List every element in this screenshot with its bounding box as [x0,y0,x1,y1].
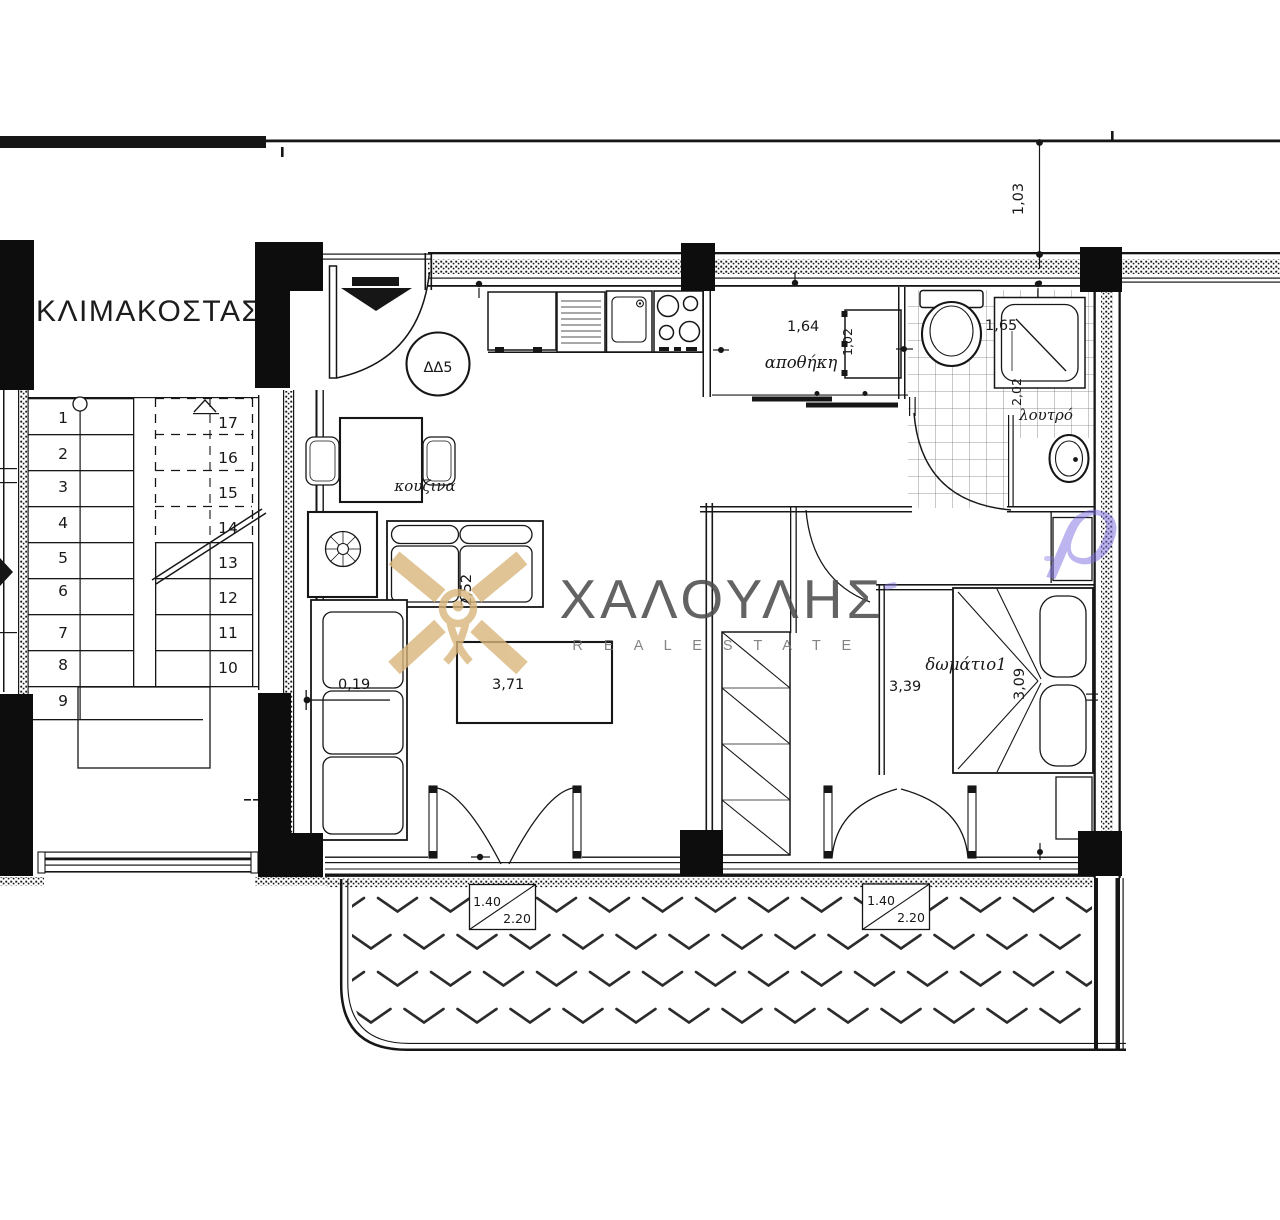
stair-number: 14 [218,519,238,537]
stair-break-line [152,509,262,580]
stair-number: 11 [218,624,238,642]
cooktop-icon [654,291,703,352]
bedroom-depth-dim: 3,09 [1012,668,1028,700]
stair-number: 6 [58,582,68,600]
column [1078,831,1122,876]
column [681,243,715,291]
dining-set: κουζινα [306,418,456,502]
sofa-offset-dim: 0,19 [338,677,370,693]
entrance-arrow-icon [341,288,412,311]
floor-plan-svg: 1 2 3 4 5 6 7 8 9 17 16 15 14 13 12 11 1… [0,0,1280,1220]
staircase: 1 2 3 4 5 6 7 8 9 17 16 15 14 13 12 11 1… [28,295,266,768]
entrance-arrow-bar [352,277,399,286]
kitchen-label: κουζινα [393,477,455,495]
stair-number: 7 [58,624,68,642]
window-dimension-box-living: 1.40 2.20 [470,885,536,930]
stair-walkline-start [73,397,87,411]
stair-number: 1 [58,409,68,427]
brand-name: ΧΑΛΟΥΛΗΣ [559,568,884,630]
storage-door-dim: 1,02 [840,328,855,356]
bathroom-label: λουτρό [1018,406,1073,424]
stair-number: 17 [218,414,238,432]
entrance-door-leaf [330,266,337,378]
dishwasher-icon [557,292,605,352]
column [255,242,323,388]
stray-watermark-letter: ρ [1045,463,1130,593]
toilet-icon [920,291,983,367]
balcony-paving [352,883,1092,1041]
column [0,240,34,390]
living-width-dim: 3,71 [492,677,524,693]
storage-width-dim: 1,64 [787,319,819,335]
balcony-door-living [429,786,581,864]
entrance-door-swing [337,272,430,378]
stair-number: 12 [218,589,238,607]
bedroom-label: δωμάτιο1 [925,655,1006,674]
stair-landing [78,687,210,768]
floor-plan: 1 2 3 4 5 6 7 8 9 17 16 15 14 13 12 11 1… [0,0,1280,1220]
insulation-hatch-top [428,259,1280,274]
stair-number: 8 [58,656,68,674]
pillow [1040,685,1086,766]
stair-number: 5 [58,549,68,567]
column [0,694,33,876]
window-width: 1.40 [473,894,501,909]
stair-number: 13 [218,554,238,572]
top-thick-wall-line [0,136,266,148]
bedroom: δωμάτιο1 3,39 3,09 [706,503,1099,860]
column [1080,247,1122,292]
window-width: 1.40 [867,893,895,908]
wardrobe [722,632,790,855]
sliding-door-panel [806,403,898,408]
window-dimension-box-bedroom: 1.40 2.20 [863,884,930,930]
stair-numbers: 1 2 3 4 5 6 7 8 9 17 16 15 14 13 12 11 1… [58,409,238,710]
kitchen-counter [488,291,703,353]
pillow [1040,596,1086,677]
unit-badge-label: ΔΔ5 [423,360,452,376]
stair-number: 10 [218,659,238,677]
coffee-table [457,642,612,723]
stair-number: 3 [58,478,68,496]
stair-number: 16 [218,449,238,467]
fridge-icon [488,292,556,350]
bathroom-width-dim: 1,65 [985,318,1017,334]
shower-icon [995,298,1086,389]
top-thin-wall-line [266,140,1280,143]
brand-tagline: R E A L E S T A T E [572,638,859,654]
stair-number: 15 [218,484,238,502]
bathroom-depth-dim: 2,02 [1009,378,1024,406]
column [680,830,723,876]
stair-number: 4 [58,514,68,532]
stairwell-label: ΚΛΙΜΑΚΟΣΤΑΣ [36,295,262,328]
top-offset-dim: 1,03 [1011,183,1027,215]
stair-number: 2 [58,445,68,463]
left-edge-arrow [0,558,13,586]
bedroom-width-dim: 3,39 [889,679,921,695]
stair-direction-arrow [194,400,216,412]
balcony-door-bedroom [824,786,976,858]
dimension-marks: 1,03 [476,139,1043,298]
storage-label: αποθήκη [765,353,838,372]
stair-number: 9 [58,692,68,710]
sliding-door-panel [752,397,832,402]
window-height: 2.20 [503,911,531,926]
sink-icon [607,291,653,352]
side-table-icon [308,512,377,597]
nightstand [1056,777,1092,839]
storage-room: 1,64 1,02 αποθήκη [703,287,909,408]
window-height: 2.20 [897,910,925,925]
